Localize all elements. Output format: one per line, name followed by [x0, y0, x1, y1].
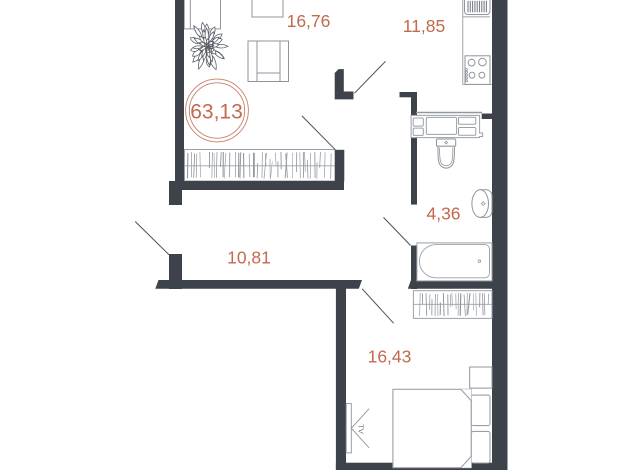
svg-text:63,13: 63,13: [190, 101, 243, 124]
svg-text:16,43: 16,43: [368, 347, 412, 367]
svg-text:10,81: 10,81: [227, 248, 271, 268]
svg-text:4,36: 4,36: [426, 203, 460, 223]
svg-text:TV: TV: [357, 424, 366, 434]
svg-text:11,85: 11,85: [403, 16, 446, 36]
svg-text:16,76: 16,76: [287, 11, 331, 31]
